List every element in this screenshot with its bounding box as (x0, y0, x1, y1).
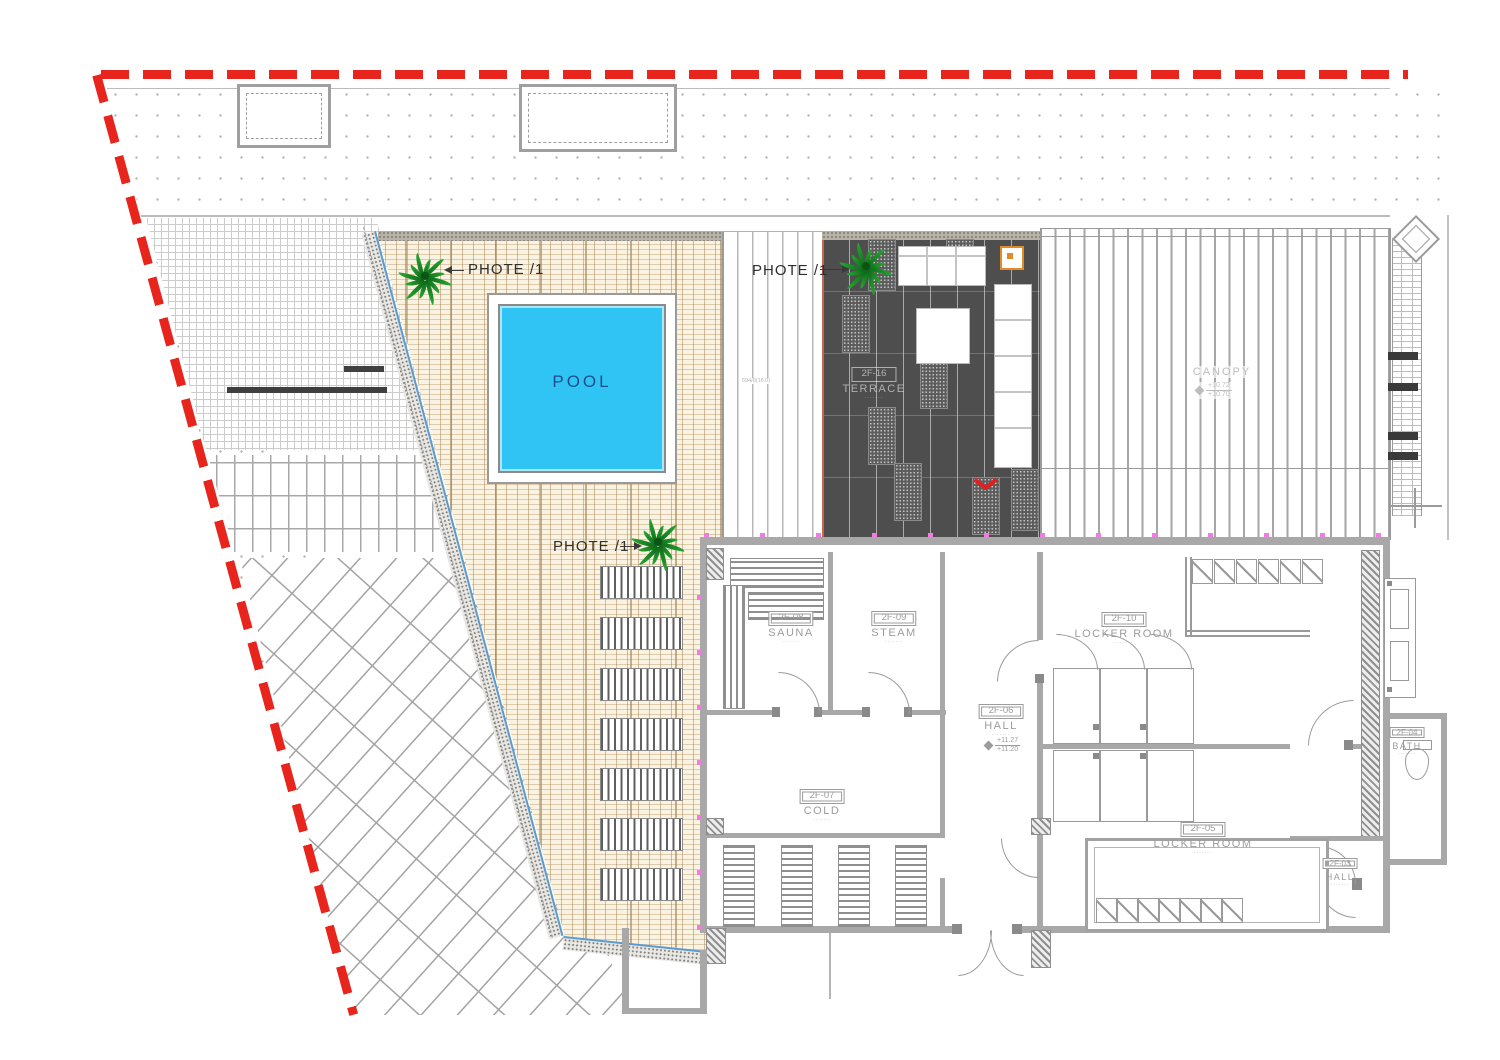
canopy-inner-top-line (1040, 236, 1390, 237)
wall-pier (1031, 818, 1051, 835)
sun-lounger (600, 617, 683, 650)
stair-wall (622, 928, 629, 1014)
skylight-inner-frame (528, 93, 668, 143)
sun-lounger (600, 868, 683, 901)
wall-sauna-front (908, 710, 946, 715)
bench-dot (1387, 687, 1392, 692)
sofa-divider (955, 247, 957, 285)
dimension-ticks-top (704, 533, 1390, 537)
photo-callout-1: PHOTE /1 (468, 261, 544, 278)
sofa-divider (926, 247, 928, 285)
slat-bench (838, 845, 870, 927)
room-name: SAUNA (768, 627, 813, 640)
stair-wall (700, 950, 707, 1014)
terrace-accent-tile (869, 240, 895, 290)
sun-lounger (600, 768, 683, 801)
pool-label: POOL (552, 372, 611, 392)
room-name: STEAM (871, 627, 916, 640)
room-name: LOCKER ROOM (1153, 838, 1252, 851)
sun-lounger (600, 818, 683, 851)
room-id: 2F-06 (979, 704, 1024, 719)
wall-bath-top (1383, 713, 1447, 719)
wall-sauna-steam (828, 552, 833, 714)
stall-handle (1093, 724, 1099, 730)
slat-bench (723, 845, 755, 927)
changing-stall (1053, 750, 1100, 822)
building-wall-left (700, 537, 707, 933)
level-diamond-icon (984, 741, 994, 751)
room-label-terrace: 2F-16 TERRACE ······· (842, 363, 905, 401)
room-finish-note: ······· (1390, 752, 1425, 758)
wall-hatched (1361, 550, 1380, 838)
locker-flap (1180, 898, 1201, 923)
locker-flap (1236, 559, 1257, 584)
room-label-hall6: 2F-06 HALL ······· (979, 700, 1024, 738)
wall-cold-right (940, 714, 945, 838)
mesh-bar-long (227, 387, 387, 393)
wall-sauna-front (818, 710, 868, 715)
edge-grating-strip (1392, 238, 1422, 516)
outdoor-table (916, 308, 970, 364)
locker-flap (1192, 559, 1213, 584)
wall-corridor-locker (1037, 552, 1043, 640)
room-label-hall3: 2F-03 HALL ······· (1323, 853, 1358, 888)
deck-extent-line (829, 933, 831, 999)
room-name: COLD (800, 805, 845, 818)
locker-flap (1201, 898, 1222, 923)
locker-flap (1117, 898, 1138, 923)
changing-stall (1100, 668, 1147, 744)
door-arc-locker5 (1308, 700, 1354, 746)
bench-divider (995, 391, 1031, 393)
photo-callout-3: PHOTE /1 (553, 538, 629, 555)
wall-pier (1031, 930, 1051, 968)
canopy-level-marker: +10.72 +10.70 (1196, 382, 1232, 399)
pool-water: POOL (498, 304, 666, 473)
room-label-sauna: 2F-08 SAUNA ······· (768, 607, 813, 645)
photo-leader-2 (820, 269, 846, 270)
room-id: 2F-08 (769, 611, 814, 626)
wall-cold-right (940, 878, 945, 926)
locker-counter-line (1185, 557, 1187, 635)
stair-wall (622, 1008, 707, 1014)
bench-dot (1387, 581, 1392, 586)
room-id: 2F-16 (852, 367, 897, 382)
bench-divider (995, 427, 1031, 429)
sun-lounger (600, 566, 683, 599)
room-id: 2F-04 (1390, 727, 1425, 738)
photo-leader-3 (620, 546, 638, 547)
terrace-accent-tile (843, 296, 869, 352)
mesh-bar-short (344, 366, 384, 372)
photo-callout-2: PHOTE /1 (752, 262, 828, 279)
terrace-accent-tile (895, 464, 921, 520)
room-id: 2F-09 (872, 611, 917, 626)
room-name: TERRACE (842, 383, 905, 396)
wall-bath-bottom (1383, 859, 1447, 865)
door-arc-cold (1001, 838, 1039, 878)
room-name: LOCKER ROOM (1074, 628, 1173, 641)
room-finish-note: ······· (871, 640, 916, 646)
room-finish-note: ······· (768, 640, 813, 646)
wall-corridor-locker (1037, 680, 1043, 926)
locker-counter-line (1185, 635, 1310, 637)
dimension-ticks-left (697, 552, 701, 930)
room-label-cold: 2F-07 COLD ······· (800, 785, 845, 823)
slat-bench (895, 845, 927, 927)
wall-pier (706, 818, 724, 835)
wall-locker-divider (1043, 744, 1290, 749)
bench-seat (1390, 589, 1409, 629)
room-id: 2F-07 (800, 789, 845, 804)
hall-level-marker: +11.27 +11.20 (985, 737, 1020, 754)
strip-dark-bar (1388, 352, 1418, 360)
level-top: +10.72 (1206, 382, 1232, 391)
room-id: 2F-10 (1102, 612, 1147, 627)
door-arc-main-right (990, 930, 1024, 976)
stall-handle (1140, 724, 1146, 730)
locker-flap (1214, 559, 1235, 584)
strip-dark-bar (1388, 452, 1418, 460)
room-label-locker5: 2F-05 LOCKER ROOM ······· (1153, 818, 1252, 856)
sun-lounger (600, 718, 683, 751)
level-bottom: +10.70 (1206, 391, 1232, 399)
photo-marker-core (1007, 253, 1013, 259)
wall-steam-right (940, 552, 945, 714)
room-id: 2F-05 (1181, 822, 1226, 837)
locker-flap (1096, 898, 1117, 923)
sauna-bench-side (723, 585, 745, 709)
room-name: HALL (979, 720, 1024, 733)
building-wall-top (700, 537, 1390, 545)
bench-seat (1390, 641, 1409, 681)
terrace-bench (994, 284, 1032, 468)
dim-note: 594/8(16.0) (741, 378, 771, 384)
photo-leader-1 (448, 270, 464, 271)
changing-stall (1100, 750, 1147, 822)
skylight-inner-frame (246, 93, 322, 139)
building-wall-bottom (700, 926, 958, 933)
canopy-mid-line (1040, 468, 1390, 469)
strip-dark-bar (1388, 432, 1418, 440)
wall-cold-bottom (700, 833, 940, 838)
skylight (519, 84, 677, 152)
right-boundary-line (1447, 215, 1449, 540)
locker-flap (1222, 898, 1243, 923)
level-bottom: +11.20 (995, 746, 1020, 754)
locker-counter-line (1185, 630, 1310, 632)
canopy-left-edge (1040, 228, 1042, 540)
skylight (237, 84, 331, 148)
room-finish-note: ······· (1323, 883, 1358, 889)
wall-pier (706, 548, 724, 580)
floor-plan: POOL 594/8(16.0) (0, 0, 1500, 1060)
slat-bench (781, 845, 813, 927)
door-arc-locker10 (997, 640, 1039, 682)
photo-marker-icon (1000, 246, 1024, 270)
site-boundary-top (101, 70, 1408, 79)
sun-lounger (600, 668, 683, 701)
room-id: 2F-03 (1323, 858, 1358, 869)
louvre-left-edge (722, 232, 724, 540)
stall-handle (1140, 753, 1146, 759)
sofa-backrest (899, 255, 985, 257)
corridor-bench (1384, 578, 1416, 698)
room-finish-note: ······· (1074, 641, 1173, 647)
door-arc-main-left (958, 930, 992, 976)
locker-flap (1258, 559, 1279, 584)
terrace-accent-line (822, 240, 824, 540)
room-finish-note: ······· (800, 818, 845, 824)
locker-flap (1280, 559, 1301, 584)
outdoor-sofa (898, 246, 986, 286)
strip-dark-bar (1388, 383, 1418, 391)
sauna-bench (730, 558, 824, 588)
room-label-bath: 2F-04 BATH ······· (1390, 722, 1425, 757)
level-top: +11.27 (995, 737, 1020, 746)
locker-flap (1159, 898, 1180, 923)
platform-edge-line (141, 215, 1390, 217)
room-finish-note: ······· (1153, 851, 1252, 857)
door-arc-steam (868, 672, 910, 714)
wall-sauna-front (700, 710, 778, 715)
terrace-accent-tile (1012, 470, 1038, 530)
view-direction-arrow-icon (973, 478, 997, 494)
locker-flap (1302, 559, 1323, 584)
changing-stall (1147, 750, 1194, 822)
level-diamond-icon (1195, 386, 1205, 396)
changing-stall (1147, 668, 1194, 744)
room-finish-note: ······· (842, 396, 905, 402)
bench-divider (995, 319, 1031, 321)
changing-stall (1053, 668, 1100, 744)
room-label-bath-clip: 2F-04 BATH ······· (1385, 722, 1429, 766)
wall-bath-right (1441, 713, 1447, 865)
cross-marker-icon (1390, 505, 1442, 507)
room-label-steam: 2F-09 STEAM ······· (871, 607, 916, 645)
canopy-label: CANOPY (1190, 366, 1254, 378)
stall-handle (1093, 753, 1099, 759)
wall-pier (706, 928, 726, 964)
room-label-locker10: 2F-10 LOCKER ROOM ······· (1074, 608, 1173, 646)
door-arc-sauna (778, 672, 820, 714)
cross-marker-icon-vertical (1414, 488, 1416, 528)
terrace-accent-tile (869, 408, 895, 464)
locker-flap (1138, 898, 1159, 923)
bench-divider (995, 355, 1031, 357)
